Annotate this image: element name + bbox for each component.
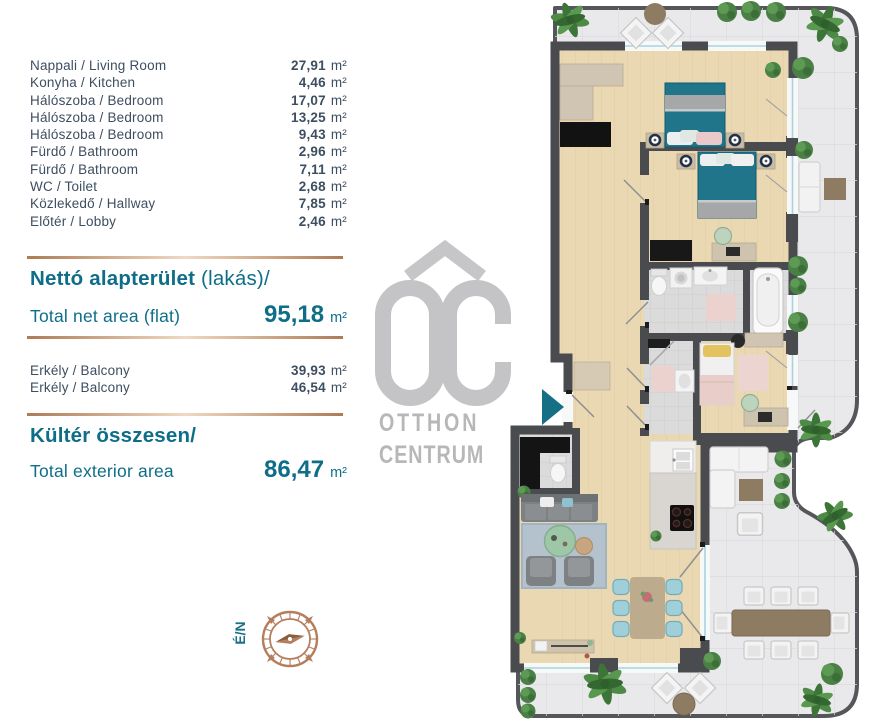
double-bed — [665, 83, 725, 147]
room-label: Fürdő / Bathroom — [30, 162, 138, 177]
divider — [27, 336, 343, 339]
unit-label: m² — [331, 110, 347, 125]
unit-label: m² — [331, 144, 347, 159]
table-row: Hálószoba / Bedroom17,07m² — [30, 93, 347, 110]
net-area-value: 95,18 — [264, 301, 324, 328]
table-row: Erkély / Balcony39,93m² — [30, 363, 347, 380]
entrance-arrow-icon — [542, 389, 564, 425]
unit-label: m² — [330, 310, 347, 326]
room-label: Nappali / Living Room — [30, 58, 166, 73]
bathtub — [753, 268, 783, 334]
unit-label: m² — [330, 465, 347, 481]
room-area-value: 2,46 — [299, 214, 326, 229]
room-label: Hálószoba / Bedroom — [30, 93, 164, 108]
cooktop — [670, 505, 694, 531]
room-area-value: 17,07 — [291, 93, 326, 108]
unit-label: m² — [331, 93, 347, 108]
room-area-value: 7,85 — [299, 196, 326, 211]
balcony-value: 39,93 — [291, 363, 326, 378]
unit-label: m² — [331, 363, 347, 378]
exterior-row: Total exterior area 86,47m² — [30, 456, 347, 484]
room-label: Hálószoba / Bedroom — [30, 127, 164, 142]
net-area-title-hu: Nettó alapterület (lakás)/ — [30, 267, 360, 291]
table-row: WC / Toilet2,68m² — [30, 179, 347, 196]
room-label: Közlekedő / Hallway — [30, 196, 155, 211]
balcony-value: 46,54 — [291, 380, 326, 395]
exterior-title-en: Total exterior area — [30, 461, 174, 482]
unit-label: m² — [331, 58, 347, 73]
room-area-table: Nappali / Living Room27,91m² Konyha / Ki… — [30, 58, 347, 231]
table-row: Hálószoba / Bedroom13,25m² — [30, 110, 347, 127]
balcony-label: Erkély / Balcony — [30, 380, 130, 395]
room-area-value: 7,11 — [300, 162, 326, 177]
room-area-value: 2,96 — [299, 144, 326, 159]
net-area-title-en: Total net area (flat) — [30, 306, 180, 327]
room-area-value: 4,46 — [299, 75, 326, 90]
double-bed — [698, 152, 756, 218]
table-row: Közlekedő / Hallway7,85m² — [30, 196, 347, 213]
unit-label: m² — [331, 75, 347, 90]
table-row: Erkély / Balcony46,54m² — [30, 380, 347, 397]
otthon-centrum-logo-icon — [372, 240, 512, 410]
entry-hall — [574, 362, 610, 390]
sofa — [521, 494, 598, 522]
logo-word-otthon: OTTHON — [379, 409, 483, 438]
room-area-value: 27,91 — [291, 58, 326, 73]
single-bed — [700, 343, 734, 405]
table-row: Konyha / Kitchen4,46m² — [30, 75, 347, 92]
divider — [27, 256, 343, 259]
unit-label: m² — [331, 162, 347, 177]
kitchen-furniture — [650, 441, 696, 549]
unit-label: m² — [331, 196, 347, 211]
floorplan-sheet: { "panel": { "unit": "m²", "rooms": [ {"… — [0, 0, 889, 726]
unit-label: m² — [331, 214, 347, 229]
room-area-value: 2,68 — [299, 179, 326, 194]
exterior-value: 86,47 — [264, 456, 324, 483]
unit-label: m² — [331, 179, 347, 194]
room-label: Konyha / Kitchen — [30, 75, 135, 90]
divider — [27, 413, 343, 416]
unit-label: m² — [331, 127, 347, 142]
room-area-value: 9,43 — [299, 127, 326, 142]
table-row: Nappali / Living Room27,91m² — [30, 58, 347, 75]
room-label: WC / Toilet — [30, 179, 97, 194]
table-row: Előtér / Lobby2,46m² — [30, 214, 347, 231]
room-area-value: 13,25 — [291, 110, 326, 125]
table-row: Fürdő / Bathroom7,11m² — [30, 162, 347, 179]
compass-icon — [245, 597, 335, 687]
room-label: Hálószoba / Bedroom — [30, 110, 164, 125]
dining-furniture — [613, 577, 682, 639]
table-row: Fürdő / Bathroom2,96m² — [30, 144, 347, 161]
balcony-table: Erkély / Balcony39,93m² Erkély / Balcony… — [30, 363, 347, 398]
logo-word-centrum: CENTRUM — [379, 441, 483, 470]
room-label: Előtér / Lobby — [30, 214, 116, 229]
table-row: Hálószoba / Bedroom9,43m² — [30, 127, 347, 144]
net-area-row: Total net area (flat) 95,18m² — [30, 301, 347, 329]
exterior-title-hu: Kültér összesen/ — [30, 424, 360, 448]
floor-plan — [510, 0, 889, 726]
room-label: Fürdő / Bathroom — [30, 144, 138, 159]
unit-label: m² — [331, 380, 347, 395]
balcony-label: Erkély / Balcony — [30, 363, 130, 378]
